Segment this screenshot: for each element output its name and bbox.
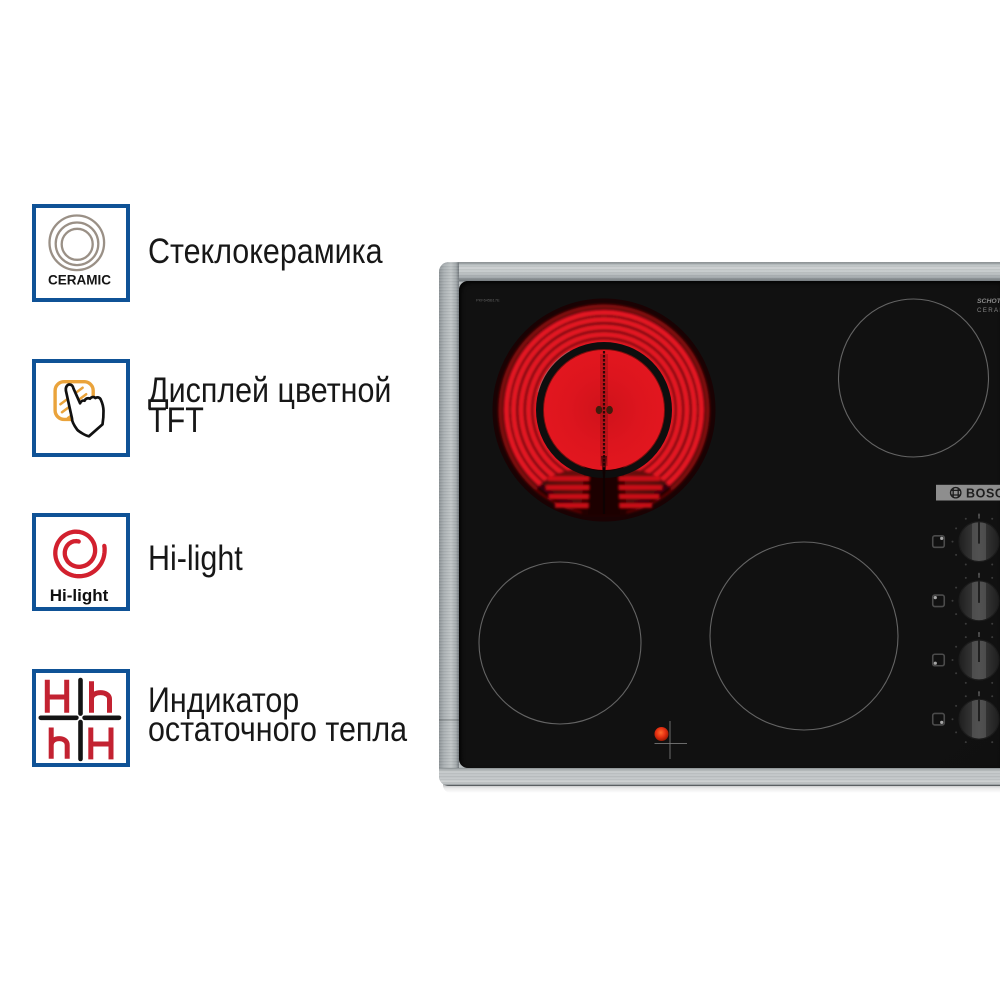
svg-text:SCHOTT: SCHOTT (977, 298, 1000, 305)
svg-text:Hi-light: Hi-light (50, 586, 109, 605)
svg-text:PKF645B17E: PKF645B17E (476, 298, 500, 303)
svg-text:CERAMIC: CERAMIC (48, 273, 111, 288)
svg-text:BOSCH: BOSCH (966, 487, 1000, 501)
svg-text:CERAN: CERAN (977, 307, 1000, 314)
